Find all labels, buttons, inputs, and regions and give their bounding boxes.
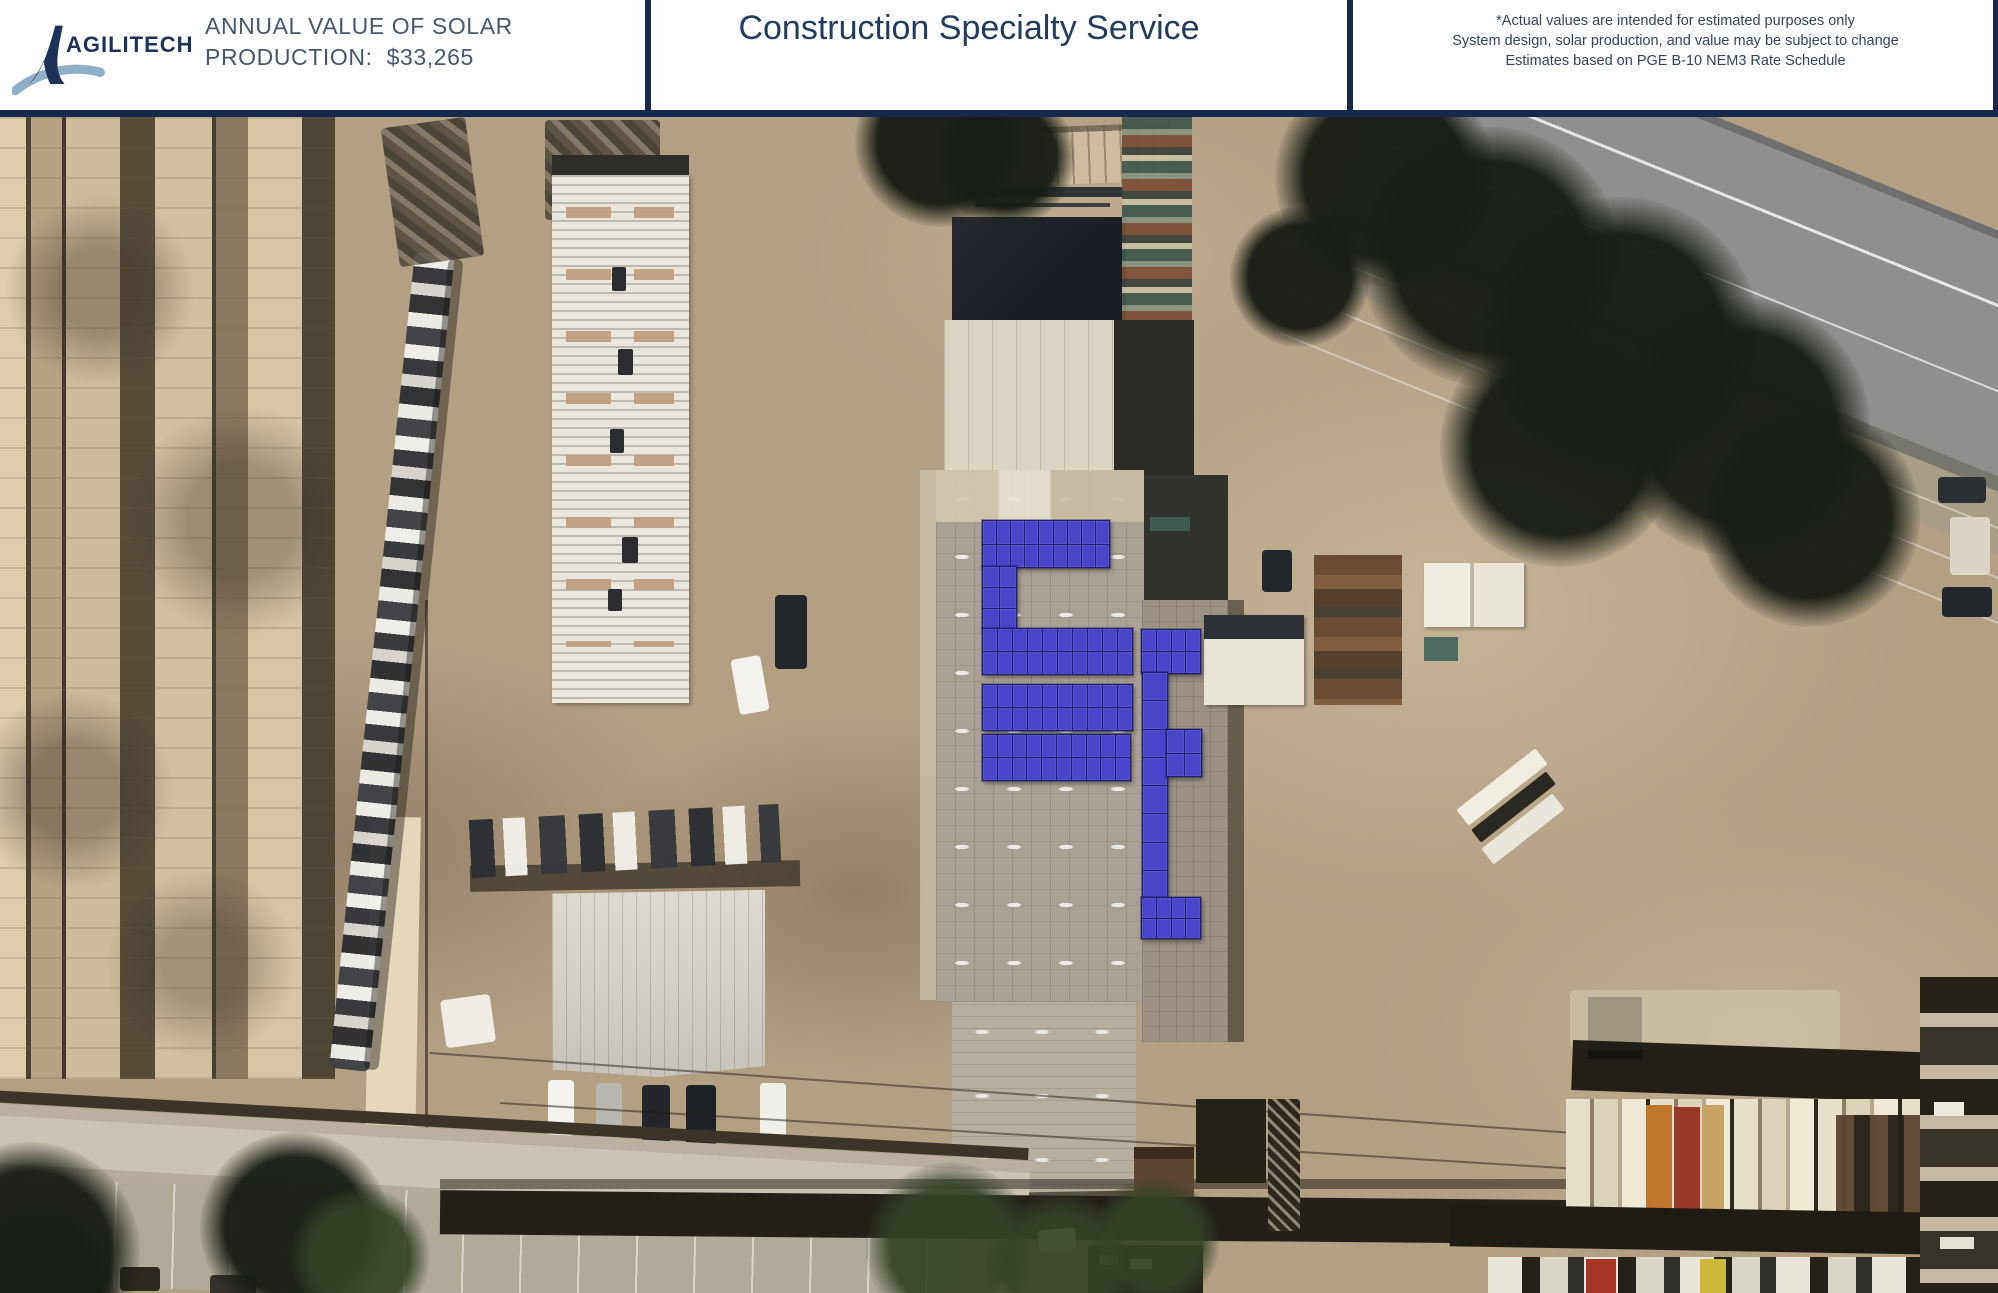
customer-title: Construction Specialty Service [651,9,1287,48]
solar-array-i [1141,897,1201,939]
solar-array-f [1141,629,1201,674]
parked-car [1262,550,1292,592]
solar-array-b [982,566,1017,630]
header-center-section: Construction Specialty Service [651,0,1347,110]
tree-blob [1440,327,1680,567]
dark-stacks [1836,1115,1932,1225]
logo: AGILITECH [10,6,220,104]
equipment-dark [1938,477,1986,503]
container-red [1674,1107,1700,1209]
solar-proposal-page: AGILITECH ANNUAL VALUE OF SOLAR PRODUCTI… [0,0,1998,1293]
solar-array-c [982,628,1133,675]
white-shed-ridge [1204,615,1304,639]
disclaimer-line-1: *Actual values are intended for estimate… [1353,11,1998,31]
solar-array-g [1142,672,1168,899]
container-orange [1646,1105,1672,1209]
truck-yellow [1700,1259,1726,1293]
truck-red [1586,1259,1616,1293]
tree-blob [1230,207,1370,347]
solar-array-e [982,734,1131,781]
equipment-white [1940,1237,1974,1249]
dark-containers [1196,1099,1266,1183]
brand-text: AGILITECH [66,32,194,58]
white-containers [1424,563,1524,627]
solar-array-a [982,520,1110,568]
disclaimer-section: *Actual values are intended for estimate… [1353,0,1998,110]
solar-array-d [982,684,1133,731]
equipment-white [1934,1102,1964,1116]
aerial-photo [0,117,1998,1293]
disclaimer-line-3: Estimates based on PGE B-10 NEM3 Rate Sc… [1353,51,1998,71]
solar-array-h [1166,729,1202,777]
annual-value-line2: PRODUCTION: $33,265 [205,42,513,73]
brown-container-stack [1314,555,1402,705]
equipment-light [1950,517,1990,575]
annual-value-text: ANNUAL VALUE OF SOLAR PRODUCTION: $33,26… [205,11,513,73]
header: AGILITECH ANNUAL VALUE OF SOLAR PRODUCTI… [0,0,1998,117]
tree-blob [1700,407,1920,627]
disclaimer-line-2: System design, solar production, and val… [1353,31,1998,51]
teal-container [1424,637,1458,661]
crane-tower [1268,1099,1300,1231]
annual-value-line1: ANNUAL VALUE OF SOLAR [205,11,513,42]
logo-mark-icon [12,16,112,102]
container-tan [1702,1105,1724,1209]
equipment-dark [1942,587,1992,617]
